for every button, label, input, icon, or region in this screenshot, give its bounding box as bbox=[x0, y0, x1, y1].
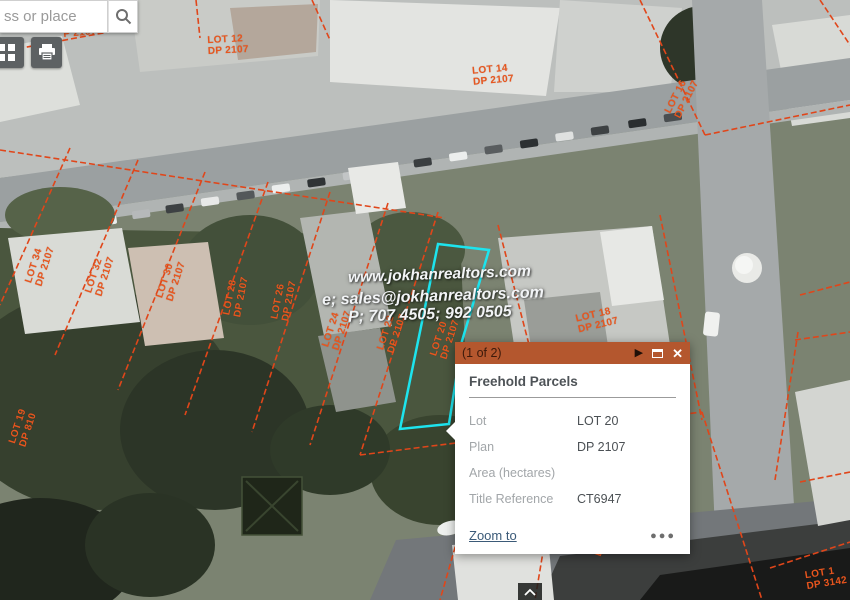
grid-icon bbox=[0, 44, 15, 61]
close-icon[interactable]: ✕ bbox=[672, 347, 683, 360]
chevron-up-icon bbox=[524, 588, 536, 596]
maximize-icon[interactable] bbox=[652, 349, 663, 358]
attribute-table: Lot LOT 20 Plan DP 2107 Area (hectares) … bbox=[469, 408, 676, 512]
popup-title: Freehold Parcels bbox=[469, 374, 676, 398]
map-viewport[interactable]: P 2107 LOT 12DP 2107 LOT 14DP 2107 LOT 1… bbox=[0, 0, 850, 600]
attribution-toggle-button[interactable] bbox=[518, 583, 542, 600]
attribute-row: Plan DP 2107 bbox=[469, 434, 676, 460]
attribute-row: Area (hectares) bbox=[469, 460, 676, 486]
aerial-imagery-canvas[interactable] bbox=[0, 0, 850, 600]
popup-header[interactable]: (1 of 2) ▶ ✕ bbox=[455, 342, 690, 364]
search-icon bbox=[115, 8, 132, 25]
feature-popup: (1 of 2) ▶ ✕ Freehold Parcels Lot LOT 20… bbox=[455, 342, 690, 554]
printer-icon bbox=[38, 44, 56, 61]
search-button[interactable] bbox=[108, 0, 138, 33]
search-input[interactable] bbox=[0, 0, 108, 33]
popup-anchor-pointer bbox=[446, 422, 455, 440]
search-bar bbox=[0, 0, 138, 33]
attribute-row: Title Reference CT6947 bbox=[469, 486, 676, 512]
popup-pager: (1 of 2) bbox=[462, 346, 626, 360]
print-button[interactable] bbox=[31, 37, 62, 68]
zoom-to-link[interactable]: Zoom to bbox=[469, 528, 517, 543]
basemap-gallery-button[interactable] bbox=[0, 37, 24, 68]
attribute-row: Lot LOT 20 bbox=[469, 408, 676, 434]
more-options-icon[interactable]: ●●● bbox=[650, 530, 676, 542]
next-feature-icon[interactable]: ▶ bbox=[635, 348, 643, 359]
